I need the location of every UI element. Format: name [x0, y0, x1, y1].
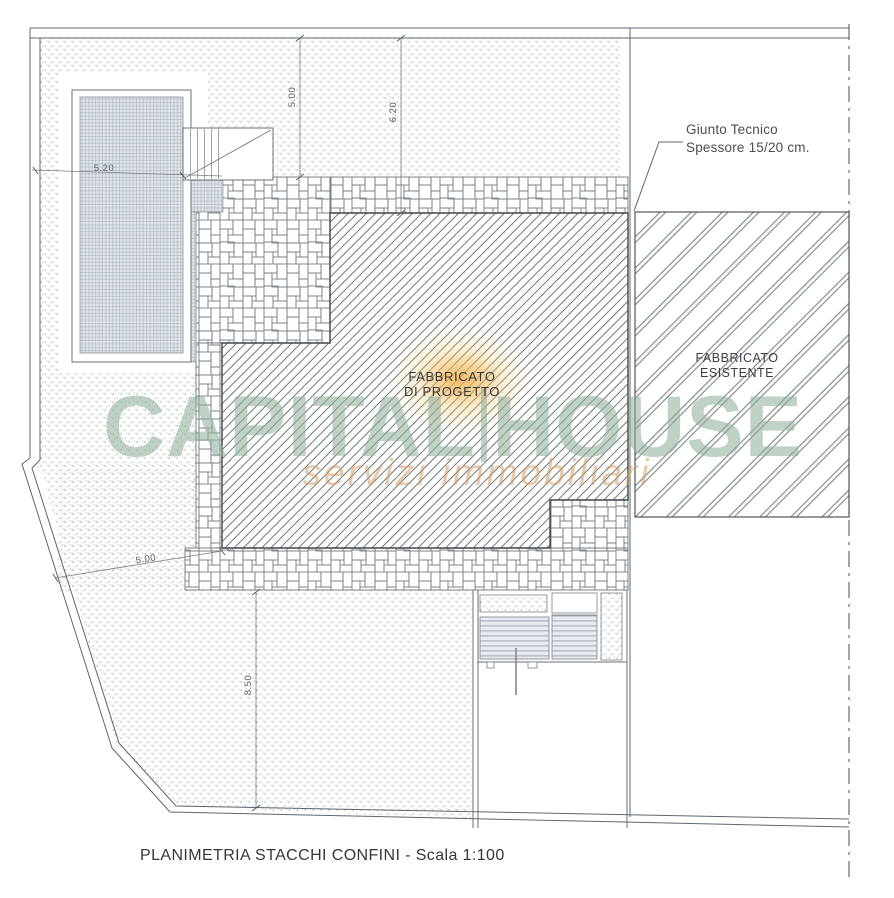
ramp-grating-right	[552, 615, 597, 659]
joint-leader-line	[634, 142, 683, 211]
site-plan-page: CAPITALHOUSE servizi immobiliari FABBRIC…	[0, 0, 894, 898]
driveway	[473, 590, 627, 828]
joint-note-line2: Spessore 15/20 cm.	[686, 139, 810, 157]
dim-bottom-setback: 8.50	[242, 665, 256, 705]
existing-building-label: FABBRICATO ESISTENTE	[637, 351, 837, 381]
existing-building-label-line1: FABBRICATO	[637, 351, 837, 366]
dim-top-setback-left: 5.00	[286, 77, 300, 117]
external-stair	[183, 128, 273, 180]
pool	[80, 97, 183, 353]
drawing-caption: PLANIMETRIA STACCHI CONFINI - Scala 1:10…	[140, 847, 505, 865]
watermark-divider	[481, 388, 487, 462]
new-building-label-line2: DI PROGETTO	[352, 384, 552, 399]
existing-building-label-line2: ESISTENTE	[637, 366, 837, 381]
dim-pool-width: 5.20	[84, 162, 124, 176]
gravel-strip	[480, 595, 547, 612]
new-building-label: FABBRICATO DI PROGETTO	[352, 369, 552, 399]
landing	[552, 593, 597, 613]
joint-note-line1: Giunto Tecnico	[686, 121, 810, 139]
ramp-grating-left	[480, 617, 549, 659]
joint-note: Giunto Tecnico Spessore 15/20 cm.	[686, 121, 810, 157]
dim-top-setback-right: 6.20	[387, 92, 401, 132]
watermark-tagline: servizi immobiliari	[120, 452, 834, 494]
gravel-strip-vertical	[601, 593, 622, 660]
new-building-label-line1: FABBRICATO	[352, 369, 552, 384]
